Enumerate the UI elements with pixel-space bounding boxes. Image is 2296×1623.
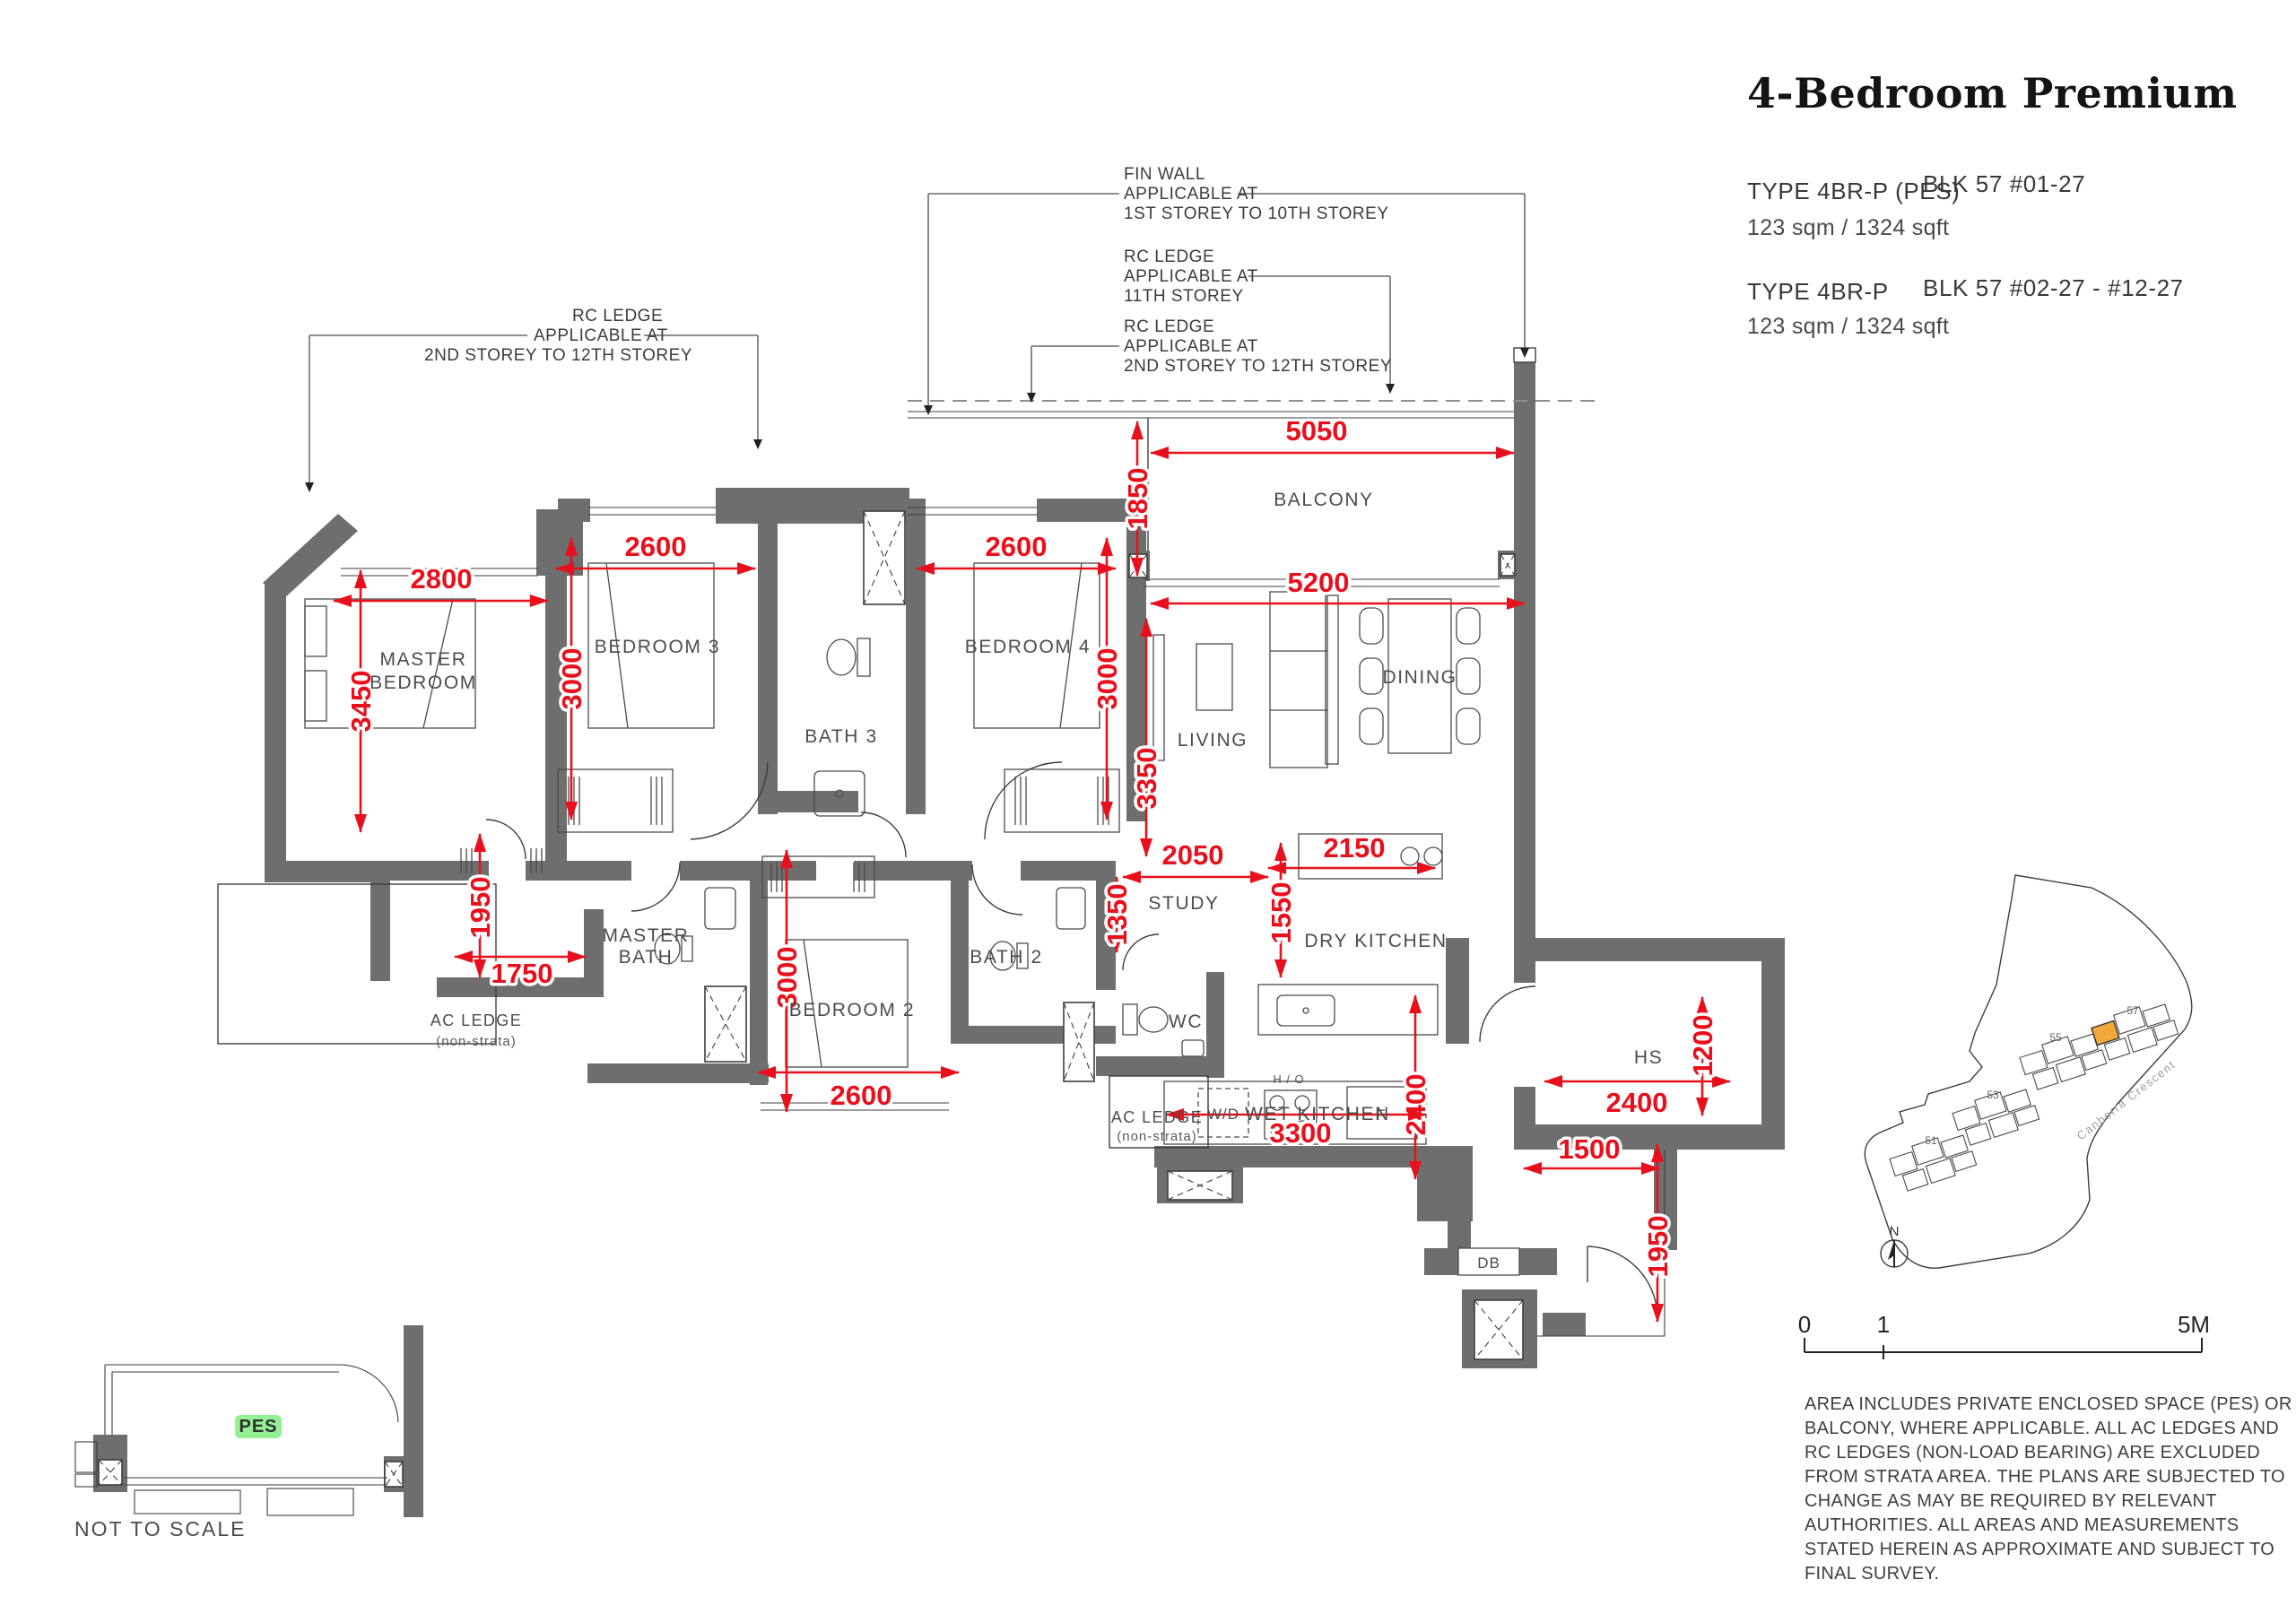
scale-5m: 5M xyxy=(2178,1311,2210,1338)
site-blk-55: 55 xyxy=(2049,1031,2062,1044)
site-plan: 51 53 55 57 Canberra Crescent N xyxy=(1865,875,2191,1268)
floor-plan-canvas: 2800 3450 2600 3000 2600 3000 5050 1850 … xyxy=(0,0,2296,1623)
site-road-label: Canberra Crescent xyxy=(2074,1057,2179,1142)
type-1-area: 123 sqm / 1324 sqft xyxy=(1747,215,1949,240)
dim-dryk-depth: 1550 xyxy=(1265,882,1297,944)
label-master-bedroom-2: BEDROOM xyxy=(370,673,477,693)
disclaimer-line-8: FINAL SURVEY. xyxy=(1805,1564,1939,1584)
title-block: 4-Bedroom Premium TYPE 4BR-P (PES) BLK 5… xyxy=(1747,69,2238,339)
dim-balcony-width: 5050 xyxy=(1286,415,1348,447)
type-2-blk: BLK 57 #02-27 - #12-27 xyxy=(1923,274,2184,301)
label-bedroom2: BEDROOM 2 xyxy=(789,1000,915,1020)
type-2-area: 123 sqm / 1324 sqft xyxy=(1747,314,1949,339)
dim-study-width: 2050 xyxy=(1162,839,1224,871)
pes-shaft-right xyxy=(385,1462,403,1487)
label-master-bath-1: MASTER xyxy=(602,925,689,946)
ann-rc11-1: RC LEDGE xyxy=(1124,247,1214,266)
ann-rc11-3: 11TH STOREY xyxy=(1124,287,1244,306)
shaft-wet-kitchen xyxy=(1168,1171,1232,1200)
dim-dryk-width: 2150 xyxy=(1324,832,1386,864)
dim-entry-width: 1500 xyxy=(1559,1133,1621,1165)
disclaimer-line-4: FROM STRATA AREA. THE PLANS ARE SUBJECTE… xyxy=(1805,1467,2285,1487)
ann-rc212-right-2: APPLICABLE AT xyxy=(1124,337,1258,356)
label-ac-ledge-left-2: (non-strata) xyxy=(436,1034,517,1049)
dim-balcony-depth: 1850 xyxy=(1122,468,1153,530)
label-fridge: F xyxy=(1376,1107,1386,1124)
dim-hs-width: 2400 xyxy=(1606,1087,1668,1118)
shaft-balcony-right xyxy=(1500,554,1515,576)
label-master-bath-2: BATH xyxy=(619,947,674,968)
label-bedroom4: BEDROOM 4 xyxy=(965,637,1091,657)
page-title: 4-Bedroom Premium xyxy=(1747,69,2238,117)
ann-fin-wall-1: FIN WALL xyxy=(1124,165,1205,184)
site-blk-53: 53 xyxy=(1987,1089,1999,1101)
label-balcony: BALCONY xyxy=(1274,490,1374,510)
site-blk-57: 57 xyxy=(2126,1004,2139,1017)
floorplan-page: 2800 3450 2600 3000 2600 3000 5050 1850 … xyxy=(0,0,2296,1623)
dim-entry-depth: 1950 xyxy=(1642,1216,1674,1278)
shaft-bath2 xyxy=(1064,1002,1094,1081)
dim-living-depth: 3350 xyxy=(1131,748,1162,810)
north-label: N xyxy=(1890,1224,1900,1239)
scale-bar: 0 1 5M xyxy=(1798,1311,2210,1359)
label-ac-ledge-right-1: AC LEDGE xyxy=(1111,1108,1203,1126)
pes-shaft-left xyxy=(99,1460,122,1485)
north-arrow-icon: N xyxy=(1881,1224,1908,1267)
dim-hs-depth: 1200 xyxy=(1687,1015,1718,1077)
label-wd: W/D xyxy=(1207,1106,1239,1123)
ann-rc11-2: APPLICABLE AT xyxy=(1124,267,1258,286)
disclaimer-line-6: AUTHORITIES. ALL AREAS AND MEASUREMENTS xyxy=(1805,1515,2239,1535)
dim-br3-width: 2600 xyxy=(625,531,687,562)
label-bath3: BATH 3 xyxy=(804,726,878,747)
dim-closet-height: 1950 xyxy=(465,877,496,939)
shaft-master-bath xyxy=(705,986,746,1062)
dim-closet-width: 1750 xyxy=(491,958,553,989)
dim-br2-width: 2600 xyxy=(831,1080,892,1111)
scale-1: 1 xyxy=(1877,1311,1890,1338)
disclaimer-line-1: AREA INCLUDES PRIVATE ENCLOSED SPACE (PE… xyxy=(1805,1394,2292,1414)
label-wet-kitchen: WET KITCHEN xyxy=(1245,1104,1390,1124)
disclaimer-line-7: STATED HEREIN AS APPROXIMATE AND SUBJECT… xyxy=(1805,1540,2274,1559)
label-ho: H / O xyxy=(1273,1072,1304,1086)
label-db: DB xyxy=(1477,1254,1500,1271)
dim-living-width: 5200 xyxy=(1288,567,1350,598)
shaft-entry xyxy=(1474,1300,1523,1359)
ann-rc212-right-1: RC LEDGE xyxy=(1124,317,1214,336)
dim-br4-height: 3000 xyxy=(1091,648,1123,710)
ann-rc212-left-3: 2ND STOREY TO 12TH STOREY xyxy=(424,346,692,365)
disclaimer-line-3: RC LEDGES (NON-LOAD BEARING) ARE EXCLUDE… xyxy=(1805,1443,2260,1462)
pes-inset: PES NOT TO SCALE xyxy=(74,1325,423,1541)
scale-0: 0 xyxy=(1798,1311,1811,1338)
ann-fin-wall-3: 1ST STOREY TO 10TH STOREY xyxy=(1124,204,1389,223)
label-hs: HS xyxy=(1634,1047,1663,1068)
dim-br3-height: 3000 xyxy=(556,648,587,710)
site-blk-51: 51 xyxy=(1925,1134,1937,1147)
label-wc: WC xyxy=(1169,1011,1203,1032)
label-study: STUDY xyxy=(1148,893,1219,914)
disclaimer-line-2: BALCONY, WHERE APPLICABLE. ALL AC LEDGES… xyxy=(1805,1419,2279,1438)
disclaimer-line-5: CHANGE AS MAY BE REQUIRED BY RELEVANT xyxy=(1805,1491,2217,1511)
label-master-bedroom-1: MASTER xyxy=(379,649,466,670)
dim-wetk-depth: 2400 xyxy=(1400,1074,1431,1136)
dim-mb-width: 2800 xyxy=(411,563,473,595)
label-bedroom3: BEDROOM 3 xyxy=(595,637,720,657)
label-dry-kitchen: DRY KITCHEN xyxy=(1304,931,1447,951)
ann-rc212-left-1: RC LEDGE xyxy=(572,307,663,325)
label-bath2: BATH 2 xyxy=(970,947,1043,968)
dim-br4-width: 2600 xyxy=(986,531,1048,562)
disclaimer: AREA INCLUDES PRIVATE ENCLOSED SPACE (PE… xyxy=(1805,1394,2292,1584)
shaft-bath3 xyxy=(864,511,905,604)
type-1-blk: BLK 57 #01-27 xyxy=(1923,170,2085,197)
type-2-label: TYPE 4BR-P xyxy=(1747,278,1889,305)
label-ac-ledge-left-1: AC LEDGE xyxy=(430,1011,522,1029)
dim-study-depth: 1350 xyxy=(1101,884,1133,946)
label-dining: DINING xyxy=(1382,667,1457,688)
label-ac-ledge-right-2: (non-strata) xyxy=(1117,1129,1197,1144)
walls xyxy=(263,348,1785,1368)
not-to-scale-label: NOT TO SCALE xyxy=(74,1517,246,1541)
label-living: LIVING xyxy=(1178,730,1248,751)
ann-rc212-right-3: 2ND STOREY TO 12TH STOREY xyxy=(1124,357,1392,376)
pes-label: PES xyxy=(239,1417,277,1436)
